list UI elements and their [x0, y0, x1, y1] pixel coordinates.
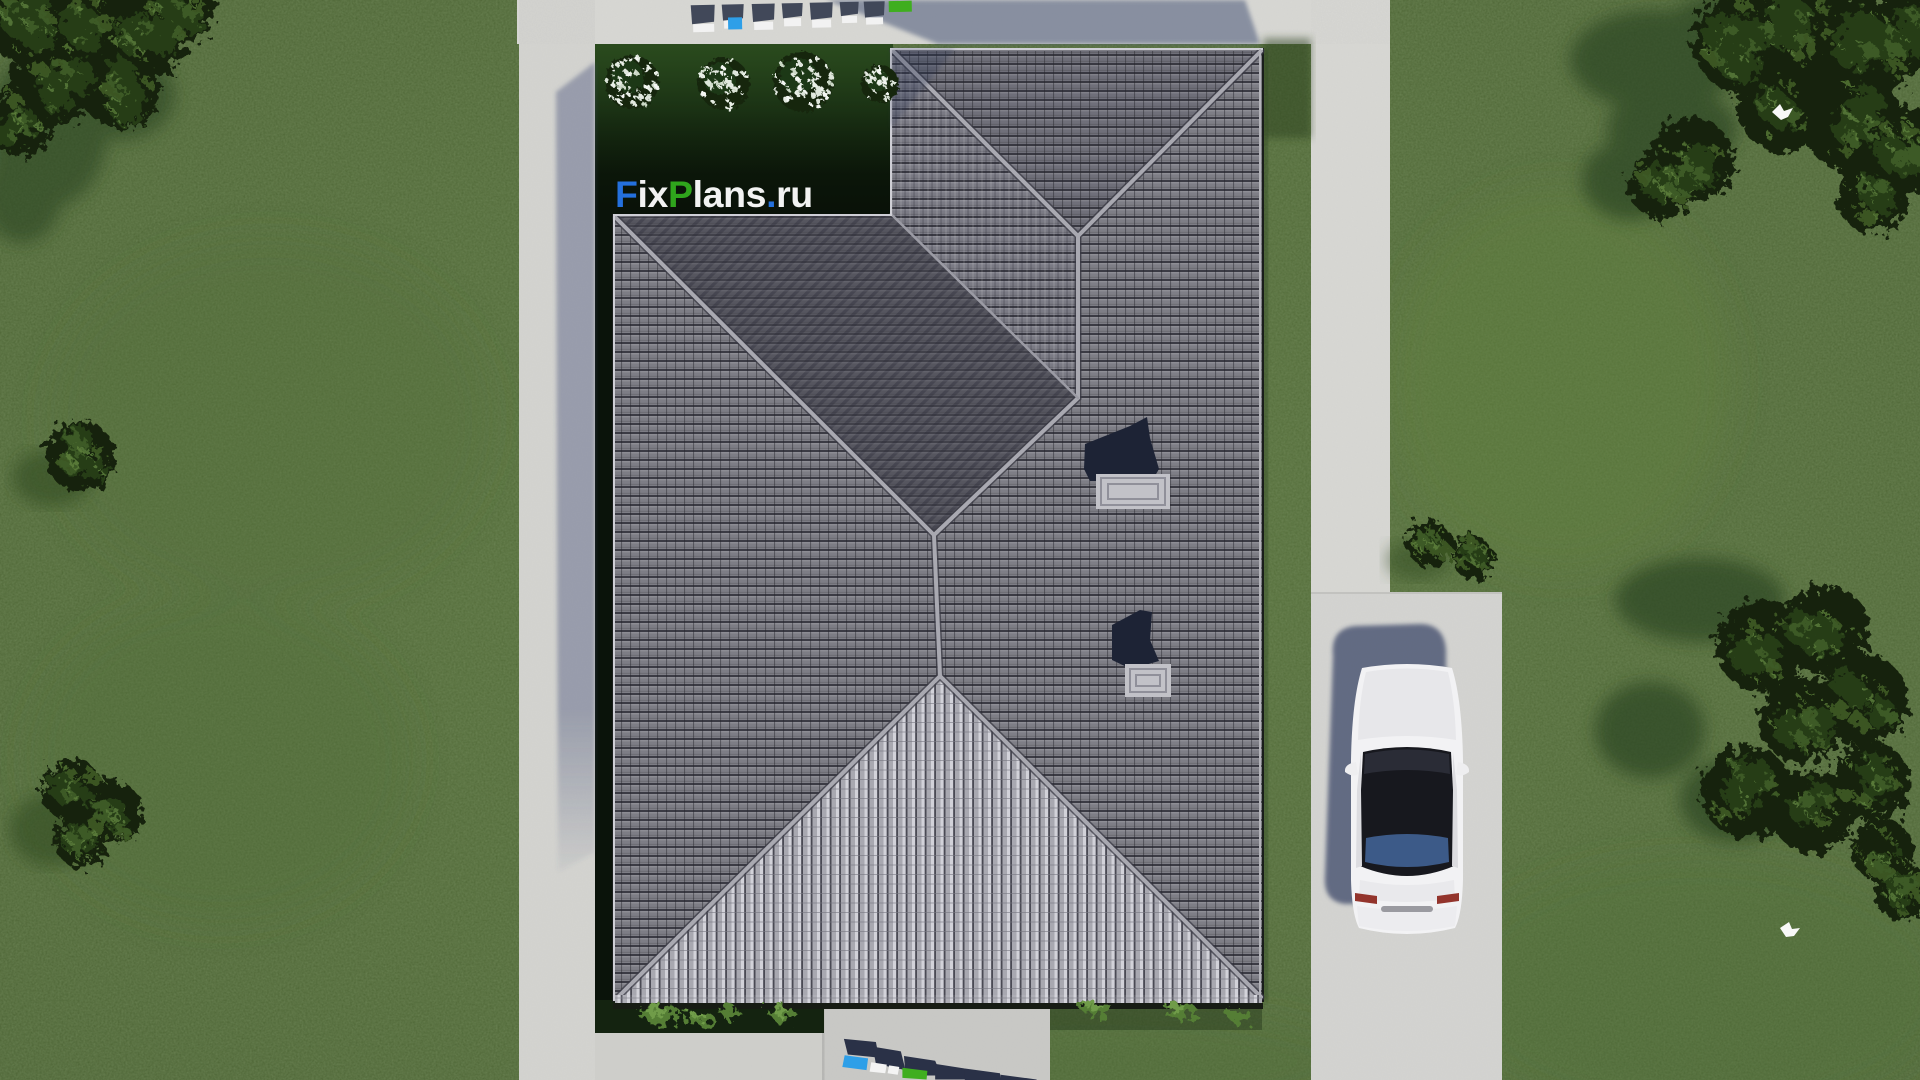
svg-text:FixPlans.ru: FixPlans.ru [615, 173, 813, 215]
